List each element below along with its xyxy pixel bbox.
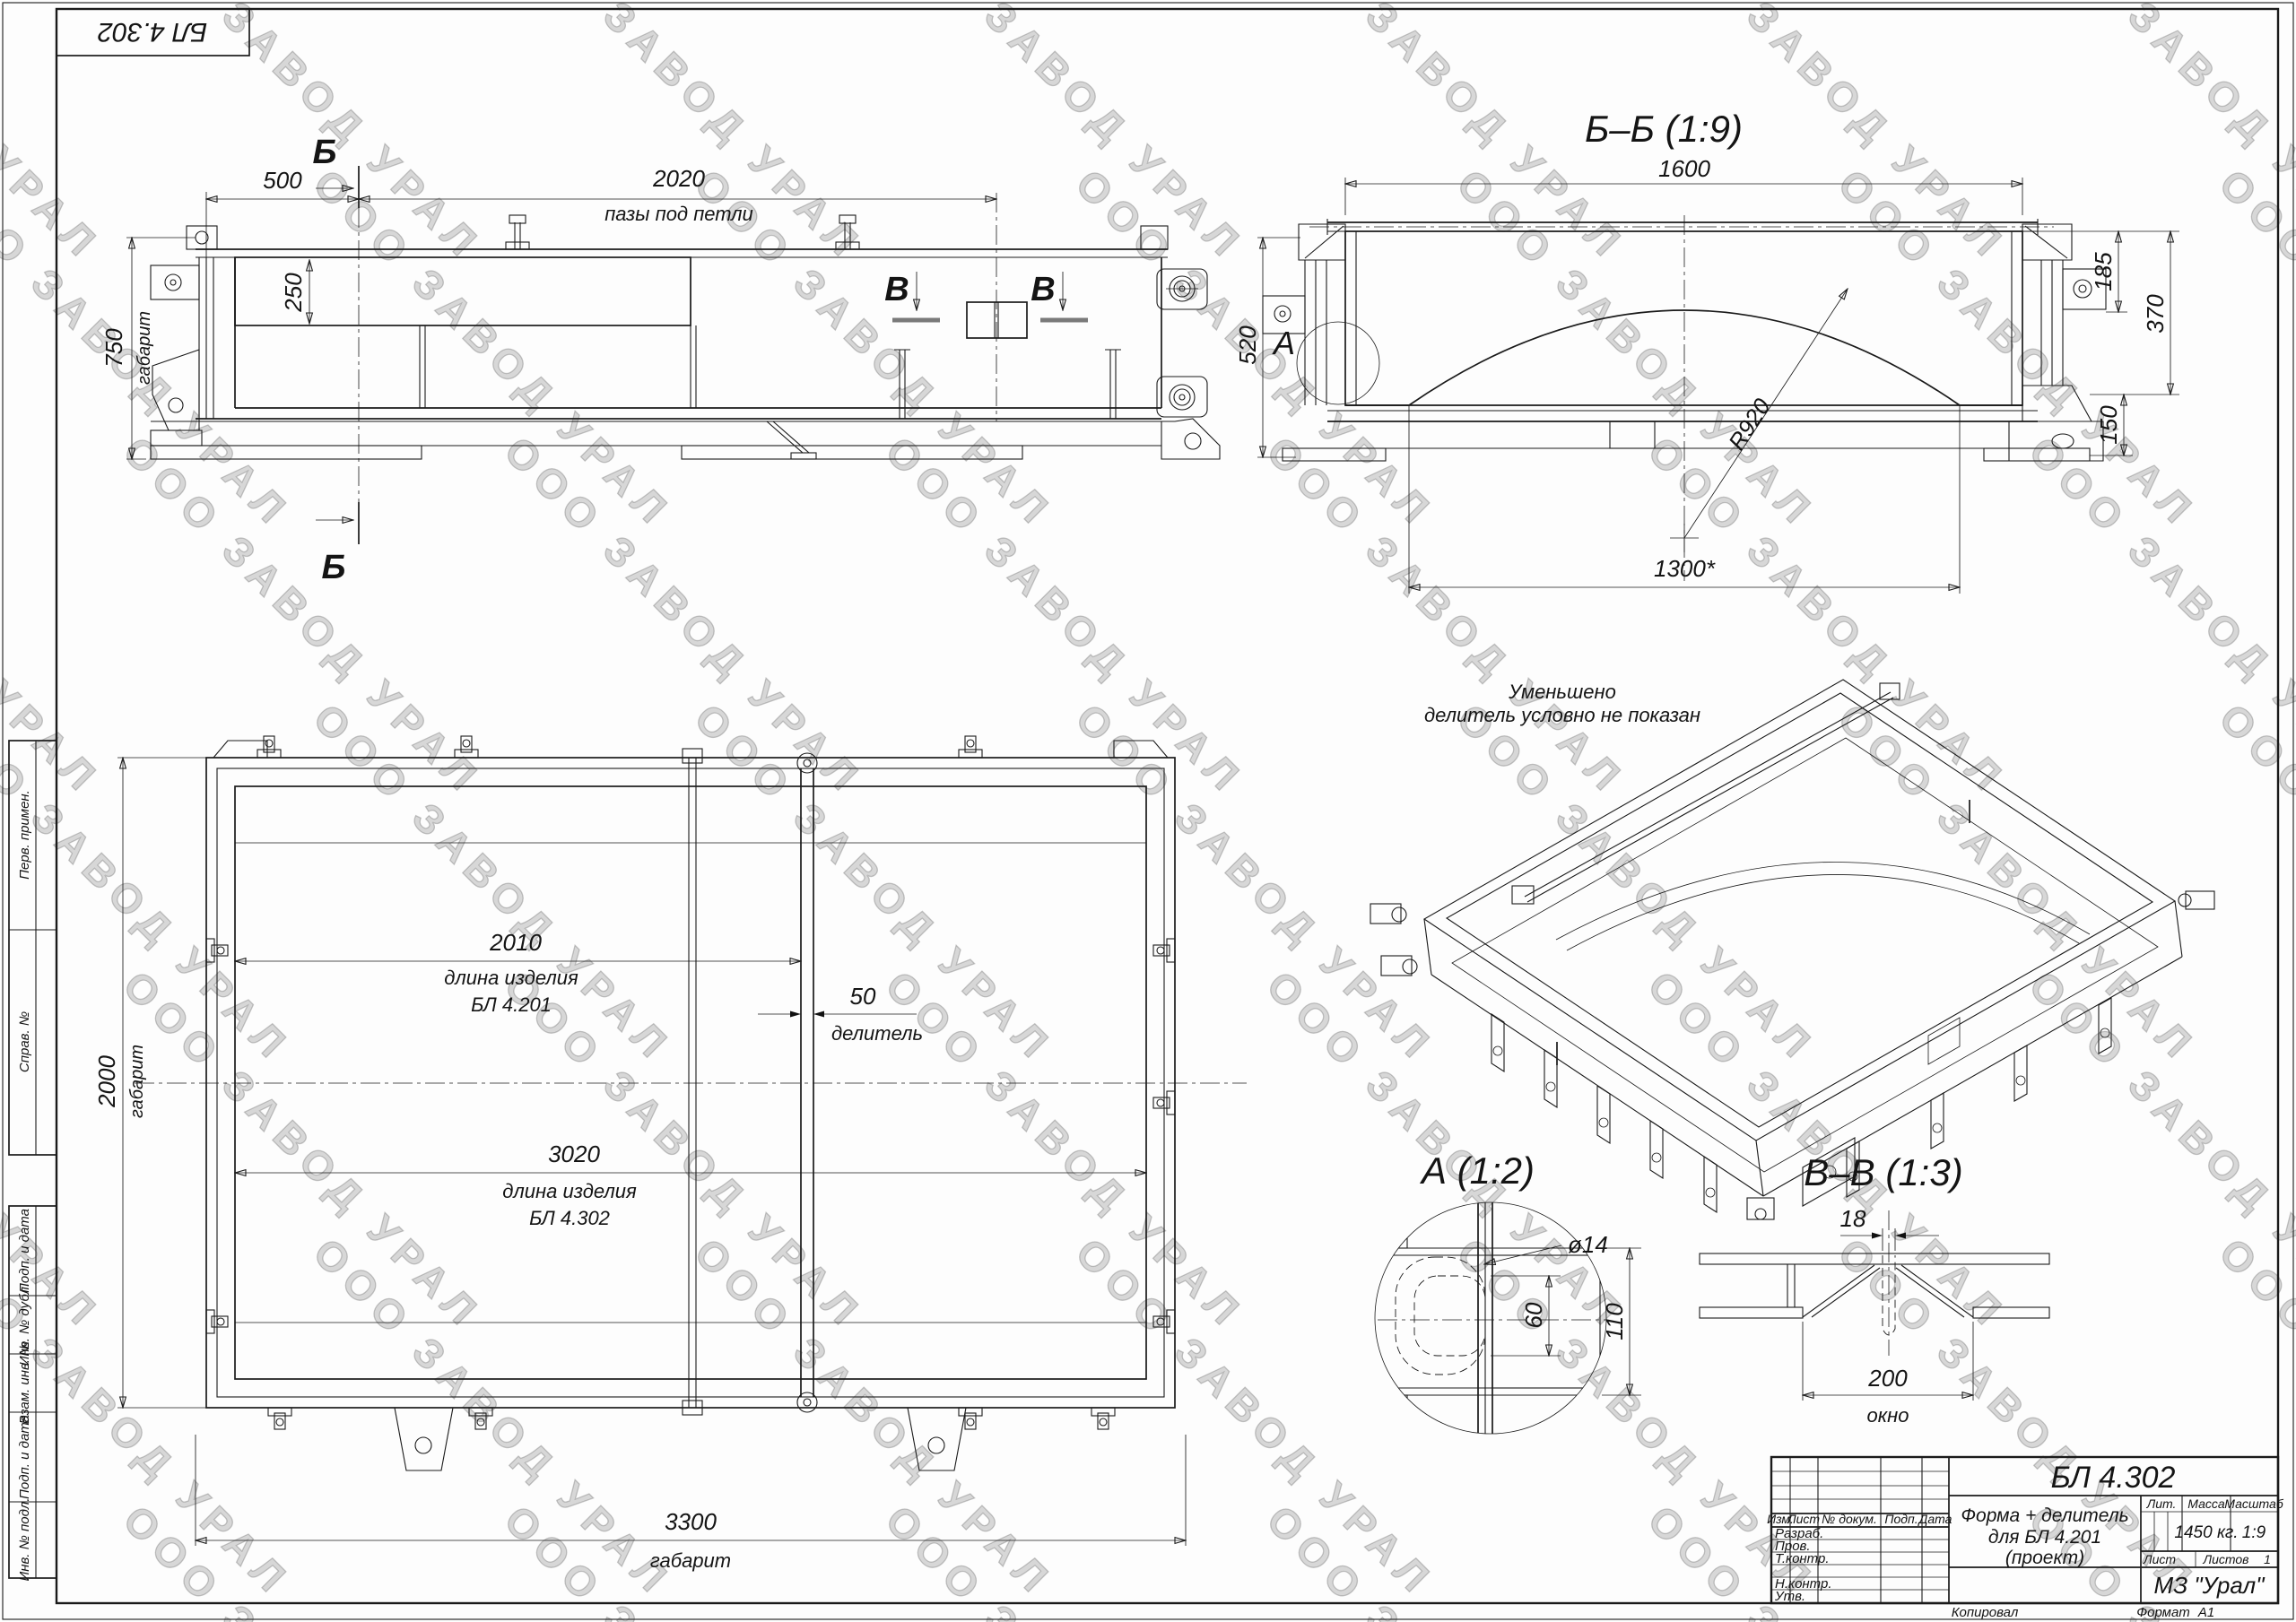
dim-2010-note2: БЛ 4.201 bbox=[471, 993, 552, 1016]
section-v-label-right: В bbox=[1031, 271, 1055, 308]
tb-format-label: Формат bbox=[2136, 1605, 2190, 1620]
dim-50: 50 bbox=[850, 983, 876, 1010]
dim-2020-note: пазы под петли bbox=[604, 203, 753, 225]
vv-dimensions: 18 200 окно bbox=[1803, 1205, 1973, 1427]
dim-185: 185 bbox=[2090, 252, 2117, 291]
hinge-pin-left bbox=[506, 215, 529, 249]
dim-3020-note2: БЛ 4.302 bbox=[529, 1207, 610, 1229]
section-v-label-left: В bbox=[884, 271, 909, 308]
dim-110: 110 bbox=[1601, 1303, 1628, 1340]
detail-a-callout: А bbox=[1272, 325, 1295, 361]
dim-2010-note1: длина изделия bbox=[444, 967, 578, 989]
dim-750: 750 bbox=[100, 328, 127, 368]
dim-2010: 2010 bbox=[489, 929, 542, 956]
dim-1600: 1600 bbox=[1658, 155, 1710, 182]
bb-r920: R920 bbox=[1670, 289, 1848, 552]
sheet-frame: БЛ 4.302 bbox=[3, 3, 2293, 1619]
tb-sheets-label: Листов bbox=[2203, 1552, 2249, 1566]
section-vv-title: В–В (1:3) bbox=[1804, 1151, 1962, 1193]
dim-200: 200 bbox=[1867, 1365, 1908, 1392]
tb-scale-value: 1:9 bbox=[2242, 1523, 2266, 1542]
title-block: БЛ 4.302 Форма + делитель для БЛ 4.201 (… bbox=[1767, 1457, 2284, 1620]
section-bb-title: Б–Б (1:9) bbox=[1585, 108, 1743, 150]
margin-label-perv-primen: Перв. примен. bbox=[17, 790, 32, 880]
dim-2000-note: габарит bbox=[127, 1045, 147, 1118]
corner-stamp-doc-number: БЛ 4.302 bbox=[97, 17, 207, 47]
plan-divider bbox=[797, 753, 817, 1412]
plan-clamps bbox=[206, 736, 1175, 1429]
margin-label-podp-data-2: Подп. и дата bbox=[17, 1415, 32, 1499]
tb-col-podp: Подп. bbox=[1884, 1512, 1918, 1526]
dim-2000: 2000 bbox=[93, 1055, 120, 1108]
dim-3020-note1: длина изделия bbox=[502, 1180, 637, 1202]
margin-label-podp-data-1: Подп. и дата bbox=[17, 1209, 32, 1293]
dim-2020: 2020 bbox=[652, 165, 705, 192]
side-view: Б Б В В 500 bbox=[100, 134, 1220, 586]
section-b-label-bottom: Б bbox=[322, 549, 346, 586]
section-b-label-top: Б bbox=[313, 134, 337, 171]
left-end-bracket bbox=[151, 257, 213, 446]
dim-d14: ø14 bbox=[1568, 1231, 1608, 1258]
tb-mass-value: 1450 кг. bbox=[2174, 1523, 2238, 1542]
margin-label-vzam-inv: Взам. инв. № bbox=[17, 1341, 32, 1425]
tb-name-line1: Форма + делитель bbox=[1961, 1505, 2128, 1526]
tb-doc-number: БЛ 4.302 bbox=[2051, 1461, 2176, 1495]
tb-sheet-label: Лист bbox=[2143, 1552, 2176, 1566]
dim-500: 500 bbox=[263, 167, 302, 194]
margin-label-inv-podl: Инв. № подл. bbox=[17, 1497, 32, 1581]
dim-3020: 3020 bbox=[548, 1141, 600, 1167]
detail-a-view: А (1:2) ø14 bbox=[1372, 1149, 1641, 1441]
dim-60: 60 bbox=[1520, 1302, 1547, 1328]
drawing-sheet: ООО ЗАВОД УРАЛООО ЗАВОД УРАЛООО ЗАВОД УР… bbox=[0, 0, 2296, 1622]
hinge-pin-right bbox=[836, 215, 859, 249]
tb-name-line2: для БЛ 4.201 bbox=[1988, 1527, 2101, 1548]
section-b-marks: Б Б bbox=[313, 134, 359, 586]
tb-sheets-value: 1 bbox=[2264, 1552, 2271, 1566]
right-end-rollers bbox=[1157, 269, 1220, 459]
tb-col-list: Лист bbox=[1787, 1512, 1820, 1526]
dim-370: 370 bbox=[2142, 294, 2169, 334]
dim-750-note: габарит bbox=[135, 311, 154, 385]
tb-lit-label: Лит. bbox=[2146, 1496, 2177, 1511]
section-v-marks: В В bbox=[884, 193, 1088, 421]
dim-3300: 3300 bbox=[665, 1508, 717, 1535]
dim-520: 520 bbox=[1234, 325, 1261, 365]
iso-note-line1: Уменьшено bbox=[1508, 681, 1616, 703]
detail-a-title: А (1:2) bbox=[1419, 1149, 1535, 1192]
dim-r920: R920 bbox=[1723, 393, 1776, 455]
margin-label-sprav-no: Справ. № bbox=[17, 1011, 32, 1072]
tb-copied-label: Копировал bbox=[1952, 1605, 2019, 1620]
dim-150: 150 bbox=[2095, 405, 2122, 445]
drawing-canvas: БЛ 4.302 Перв. примен. Справ. № Подп. и … bbox=[0, 0, 2296, 1622]
bb-left-bracket: А bbox=[1263, 224, 1379, 405]
margin-stamps: Перв. примен. Справ. № Подп. и дата Инв.… bbox=[9, 741, 57, 1582]
dim-200-note: окно bbox=[1867, 1404, 1909, 1427]
tb-mass-label: Масса bbox=[2187, 1496, 2225, 1511]
dim-50-note: делитель bbox=[831, 1022, 923, 1045]
tb-name-line3: (проект) bbox=[2005, 1548, 2084, 1568]
iso-note-line2: делитель условно не показан bbox=[1424, 704, 1700, 726]
dim-3300-note: габарит bbox=[650, 1549, 731, 1572]
tb-scale-label: Масштаб bbox=[2224, 1496, 2284, 1511]
tb-col-data: Дата bbox=[1918, 1512, 1952, 1526]
iso-stiffeners bbox=[1492, 998, 2111, 1212]
tb-company: МЗ "Урал" bbox=[2154, 1572, 2266, 1599]
tb-format-value: А1 bbox=[2197, 1605, 2214, 1620]
section-vv-view: В–В (1:3) 18 200 bbox=[1700, 1151, 2049, 1427]
tb-row-utv: Утв. bbox=[1774, 1589, 1805, 1604]
dim-1300: 1300* bbox=[1654, 555, 1716, 582]
plan-dimensions: 2000 габарит 2010 длина изделия БЛ 4.201… bbox=[93, 758, 1186, 1572]
section-bb-view: Б–Б (1:9) bbox=[1234, 108, 2179, 594]
dim-18: 18 bbox=[1840, 1205, 1866, 1232]
iso-view: Уменьшено делитель условно не показан bbox=[1370, 680, 2214, 1219]
tb-col-doc: № докум. bbox=[1822, 1512, 1877, 1526]
plan-view: 2000 габарит 2010 длина изделия БЛ 4.201… bbox=[93, 736, 1247, 1572]
tb-row-tkontr: Т.контр. bbox=[1775, 1551, 1830, 1566]
dim-250: 250 bbox=[280, 273, 307, 313]
